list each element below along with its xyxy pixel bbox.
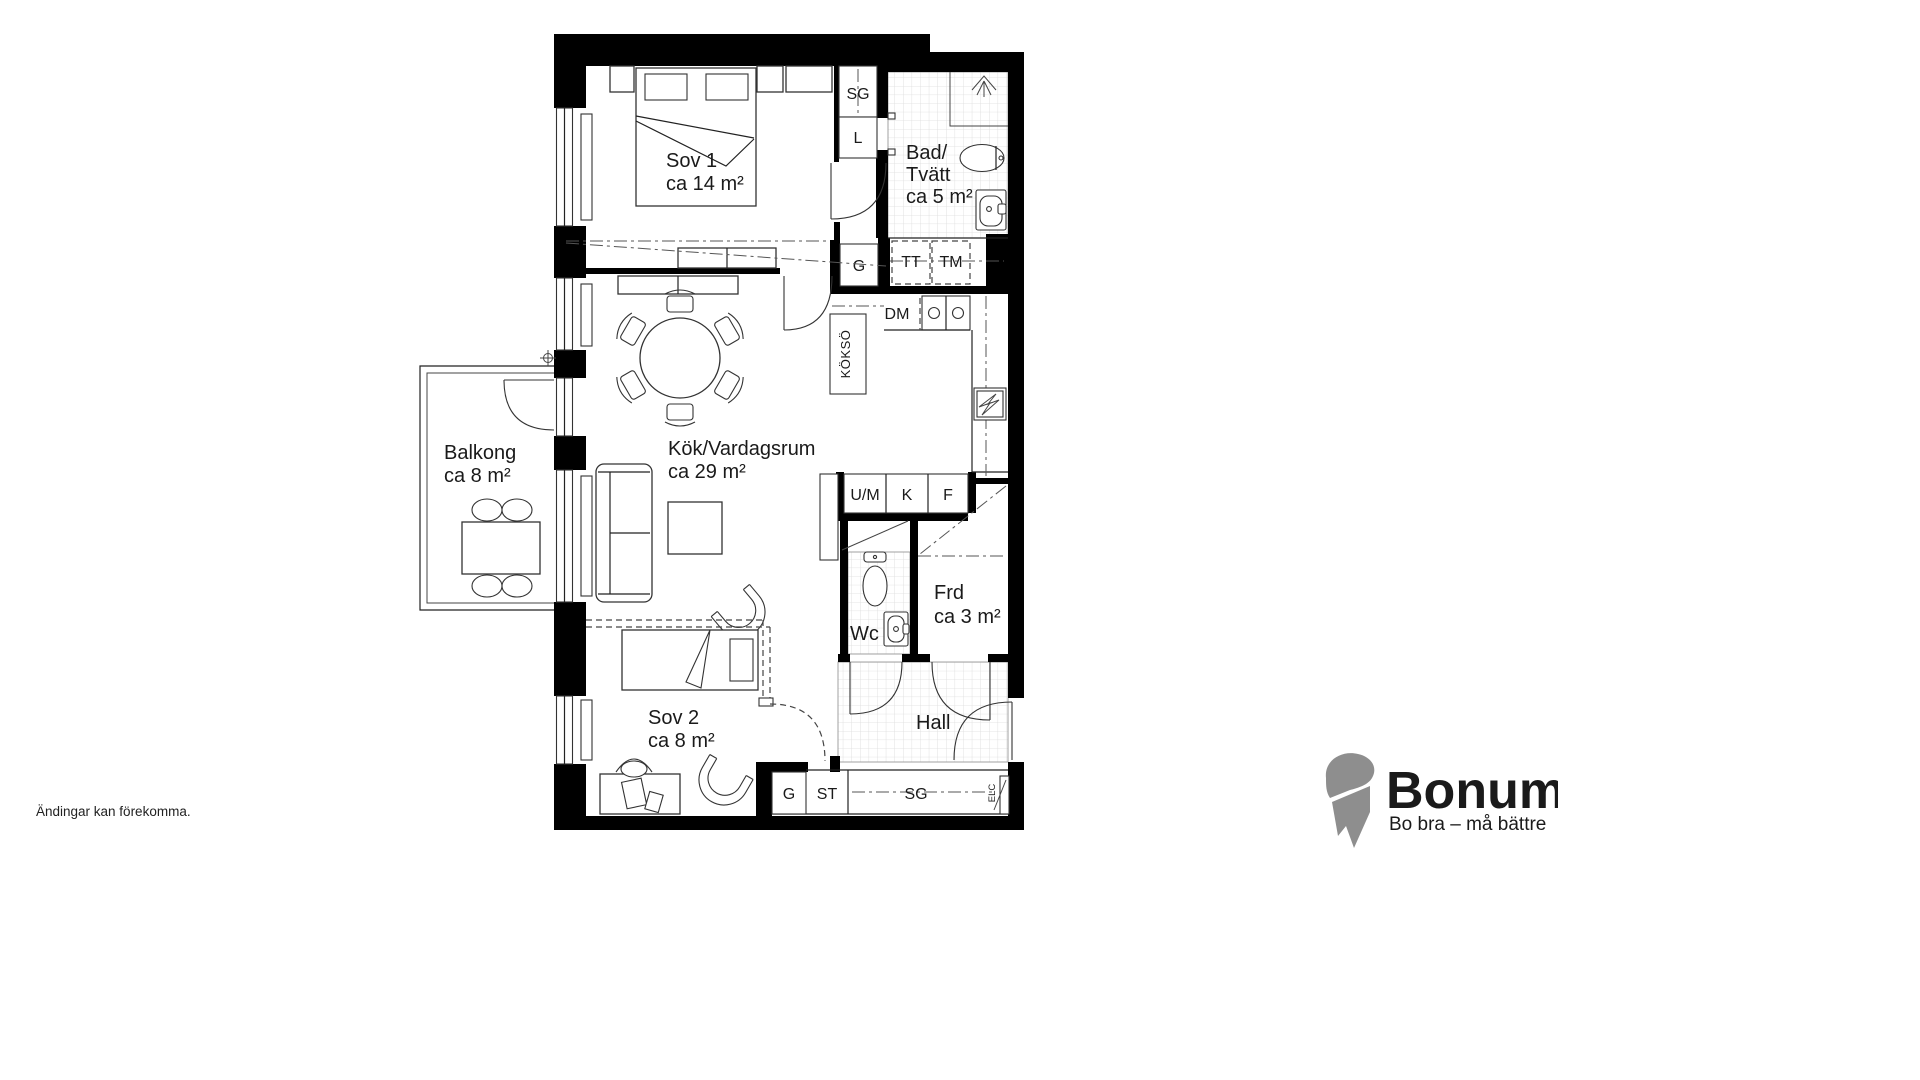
sov1-area: ca 14 m² — [666, 173, 744, 195]
sink-icon — [976, 190, 1006, 230]
g-sov2-label: G — [783, 786, 795, 803]
st-label: ST — [817, 786, 838, 803]
balkong-area: ca 8 m² — [444, 465, 511, 487]
k-label: K — [902, 487, 913, 504]
wc-label: Wc — [850, 623, 879, 645]
page: Balkong ca 8 m² Sov 1 ca 14 m² SG L G — [0, 0, 1920, 1080]
disclaimer-text: Ändingar kan förekomma. — [36, 804, 191, 819]
frd-area: ca 3 m² — [934, 606, 1001, 628]
bonum-logo-icon — [1326, 753, 1374, 848]
electrical-panel-icon — [974, 388, 1006, 420]
kokso-label: KÖKSÖ — [838, 330, 853, 379]
sov1-label: Sov 1 — [666, 150, 717, 172]
sofa — [596, 464, 652, 602]
um-label: U/M — [850, 487, 879, 504]
bad-area: ca 5 m² — [906, 186, 973, 208]
g-top-label: G — [853, 258, 865, 275]
f-label: F — [943, 487, 953, 504]
toilet-wc-icon — [863, 552, 887, 606]
floorplan: Balkong ca 8 m² Sov 1 ca 14 m² SG L G — [0, 0, 1920, 1080]
dm-label: DM — [885, 306, 910, 323]
bonum-brand-text: Bonum — [1386, 762, 1558, 820]
frd-label: Frd — [934, 582, 964, 604]
bonum-logo: Bonum Bo bra – må bättre — [1318, 748, 1558, 852]
sink-wc-icon — [884, 612, 909, 646]
sov2-area: ca 8 m² — [648, 730, 715, 752]
linen-label: L — [854, 130, 863, 147]
balkong-label: Balkong — [444, 442, 516, 464]
hall-label: Hall — [916, 712, 950, 734]
sg-hall-label: SG — [904, 786, 927, 803]
kok-label: Kök/Vardagsrum — [668, 438, 815, 460]
kok-area: ca 29 m² — [668, 461, 746, 483]
bad-label-2: Tvätt — [906, 164, 951, 186]
sov2-label: Sov 2 — [648, 707, 699, 729]
toilet-icon — [960, 145, 1004, 172]
elc-label: ELC — [987, 784, 998, 803]
bonum-tagline-text: Bo bra – må bättre — [1389, 814, 1546, 835]
tt-label: TT — [901, 254, 921, 271]
bad-label-1: Bad/ — [906, 142, 948, 164]
tm-label: TM — [939, 254, 962, 271]
sg-top-label: SG — [846, 86, 869, 103]
